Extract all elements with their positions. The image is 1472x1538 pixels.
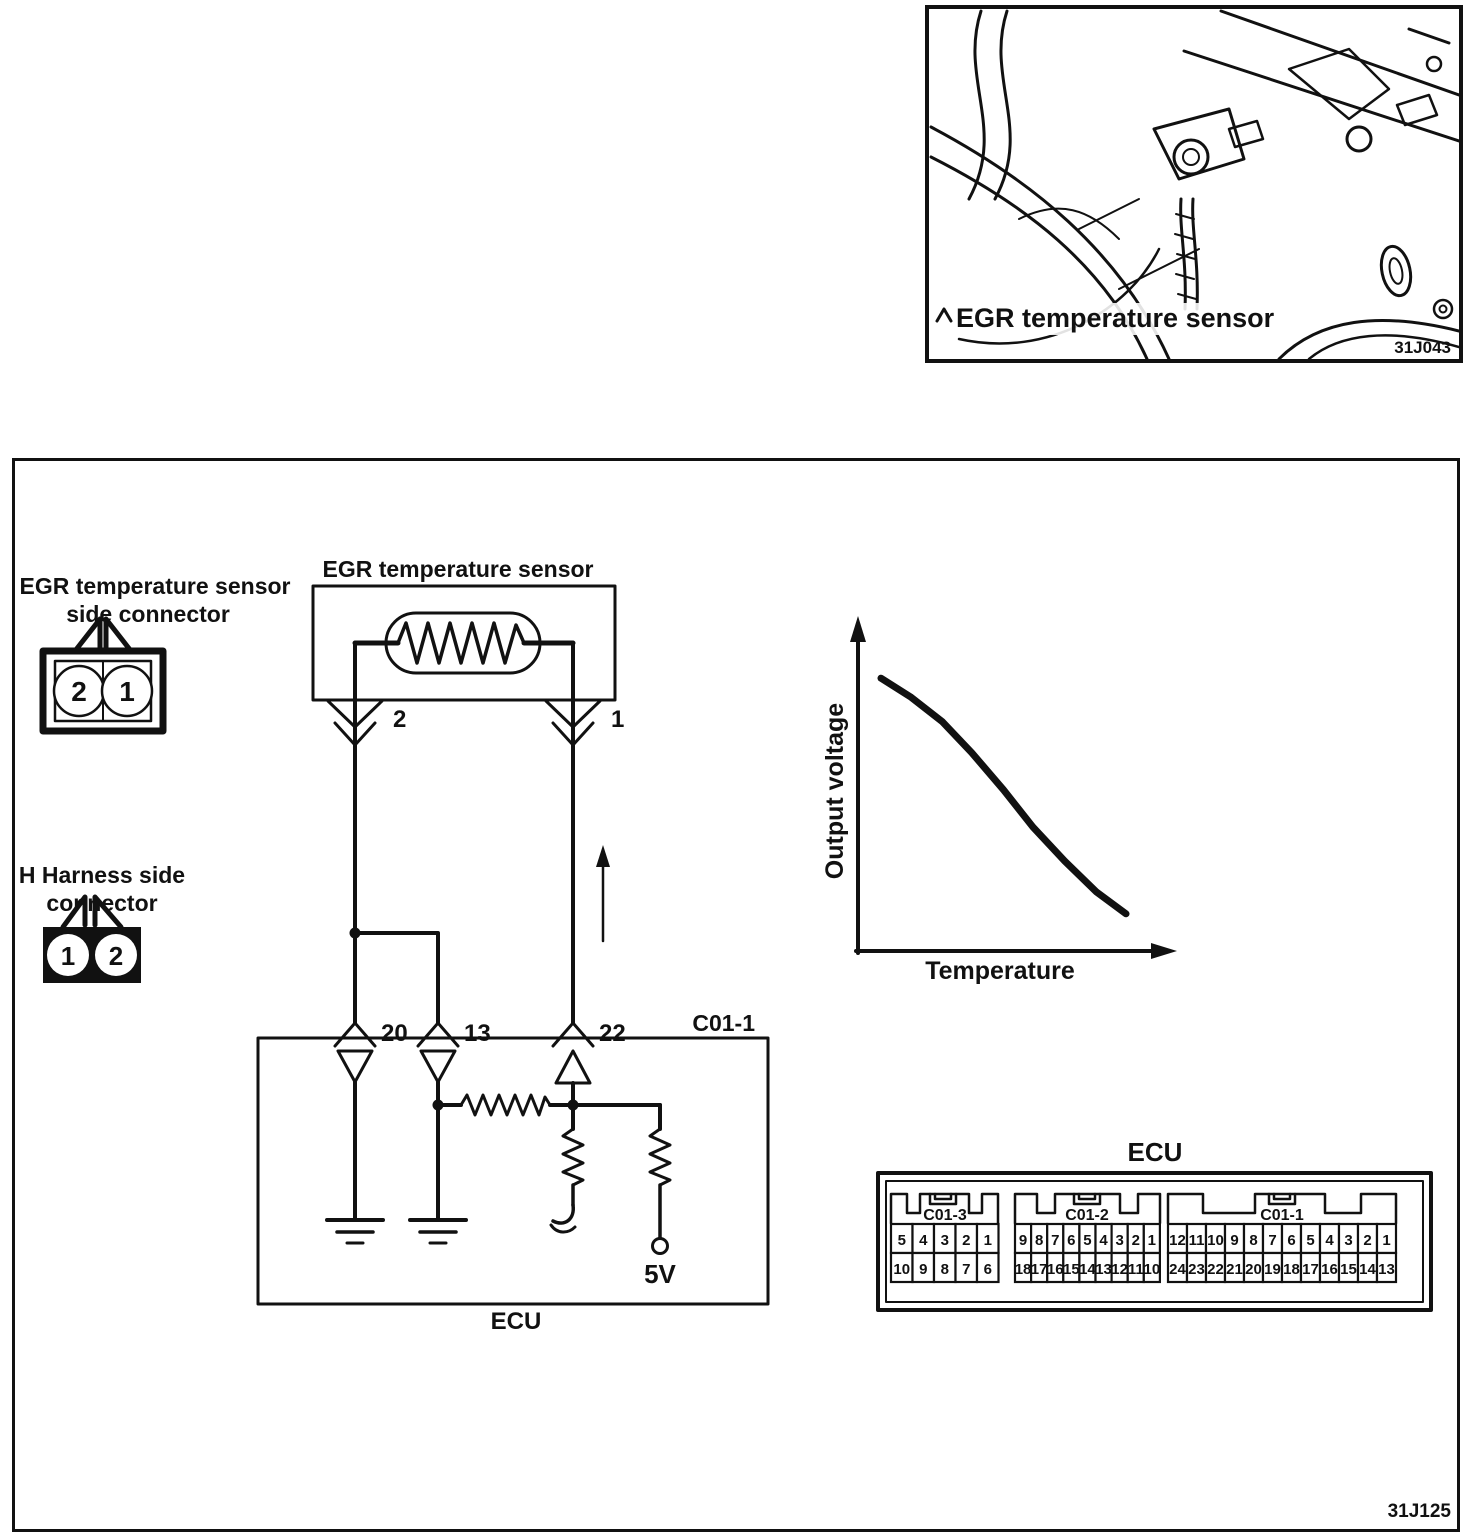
ecu-pin-number: 1	[1148, 1232, 1156, 1249]
engine-line-art: EGR temperature sensor 31J043	[929, 9, 1459, 359]
ecu-pin-number: 18	[1015, 1261, 1032, 1278]
pinout-section-label-c01-3: C01-3	[923, 1207, 967, 1224]
caption-caret	[937, 309, 951, 321]
photo-figure-code: 31J043	[1394, 338, 1451, 357]
harness-side-connector-label-line1: H Harness side	[19, 862, 185, 888]
ecu-box-label: ECU	[491, 1308, 542, 1335]
ecu-pin-number: 2	[962, 1232, 970, 1249]
ecu-pin-number: 24	[1169, 1261, 1186, 1278]
pinout-section-label-c01-2: C01-2	[1065, 1207, 1109, 1224]
ecu-pin-number: 7	[1268, 1232, 1276, 1249]
manual-page: { "photo_panel": { "caption": "EGR tempe…	[0, 0, 1472, 1538]
ecu-pin-number: 10	[893, 1261, 910, 1278]
ecu-pin-number: 7	[962, 1261, 970, 1278]
sensor-side-connector-label-line2: side connector	[66, 601, 230, 627]
ecu-pin-number: 4	[919, 1232, 928, 1249]
ecu-pin-number: 4	[1325, 1232, 1334, 1249]
ecu-pin-number: 11	[1189, 1232, 1205, 1249]
y-axis-label: Output voltage	[821, 703, 849, 879]
ecu-pin-number: 1	[984, 1232, 992, 1249]
voltage-temperature-curve	[881, 678, 1126, 914]
ecu-pin-number: 7	[1051, 1232, 1059, 1249]
engine-illustration-panel: EGR temperature sensor 31J043	[925, 5, 1463, 363]
ecu-pin-number: 11	[1128, 1261, 1144, 1278]
sensor-characteristic-graph: Output voltage Temperature	[821, 616, 1177, 985]
ecu-pin-number: 3	[941, 1232, 949, 1249]
ecu-pin-number: 20	[1245, 1261, 1262, 1278]
ecu-pin-number: 2	[1132, 1232, 1140, 1249]
ecu-pin-number: 6	[984, 1261, 992, 1278]
ecu-pin-number: 21	[1226, 1261, 1243, 1278]
ecu-pin-number: 12	[1111, 1261, 1128, 1278]
ecu-pin-number: 14	[1359, 1261, 1376, 1278]
ecu-pin-number: 9	[1230, 1232, 1238, 1249]
photo-caption: EGR temperature sensor	[956, 303, 1275, 333]
ecu-pin-number: 13	[1378, 1261, 1395, 1278]
sensor-side-connector-label-line1: EGR temperature sensor	[20, 573, 291, 599]
ecu-box: 20 13 22	[258, 1020, 768, 1304]
ecu-pin-number: 19	[1264, 1261, 1281, 1278]
sensor-resistor	[398, 623, 524, 663]
current-arrow	[596, 845, 610, 941]
wiring-diagram-panel: EGR temperature sensor side connector 2 …	[12, 458, 1460, 1532]
ecu-pin-number: 10	[1207, 1232, 1224, 1249]
ecu-pin-number: 4	[1099, 1232, 1108, 1249]
ecu-pin-number: 3	[1344, 1232, 1352, 1249]
ecu-pin-number: 13	[1095, 1261, 1112, 1278]
ecu-pin-number: 17	[1031, 1261, 1048, 1278]
ecu-pin-number: 14	[1079, 1261, 1096, 1278]
ecu-pin-13: 13	[464, 1020, 491, 1047]
sensor-connector-pin-1: 1	[119, 676, 135, 707]
x-axis-arrowhead	[1151, 943, 1177, 959]
wiring-diagram: EGR temperature sensor side connector 2 …	[15, 461, 1457, 1529]
pinout-grid-c01-3: 54321109876	[891, 1224, 999, 1282]
y-axis-arrowhead	[850, 616, 866, 642]
sensor-box	[313, 586, 615, 700]
ecu-pin-number: 6	[1067, 1232, 1075, 1249]
ecu-pin-number: 8	[1035, 1232, 1043, 1249]
ecu-pin-number: 12	[1169, 1232, 1186, 1249]
ecu-pin-number: 8	[941, 1261, 949, 1278]
ecu-pin-number: 5	[1083, 1232, 1091, 1249]
wiring-figure-code: 31J125	[1388, 1501, 1452, 1522]
ecu-pin-20: 20	[381, 1020, 408, 1047]
sensor-connector-pin-2: 2	[71, 676, 87, 707]
ecu-pin-number: 22	[1207, 1261, 1224, 1278]
harness-connector-pin-2: 2	[109, 941, 123, 971]
pullup-series-resistor	[461, 1095, 550, 1115]
ground-symbol-left	[327, 1220, 383, 1243]
ecu-pin-number: 9	[919, 1261, 927, 1278]
ecu-pin-number: 6	[1287, 1232, 1295, 1249]
ecu-pin-22: 22	[599, 1020, 626, 1047]
ecu-pin-number: 8	[1249, 1232, 1257, 1249]
pinout-section-label-c01-1: C01-1	[1260, 1207, 1304, 1224]
engine-sketch-sensor-area	[1154, 109, 1263, 309]
ecu-pin-number: 3	[1115, 1232, 1123, 1249]
pinout-grid-c01-1: 121110987654321242322212019181716151413	[1168, 1224, 1396, 1282]
sensor-side-connector-icon: 2 1	[43, 619, 163, 731]
ecu-pin-number: 1	[1382, 1232, 1390, 1249]
x-axis-label: Temperature	[925, 957, 1075, 985]
ecu-pin-number: 10	[1144, 1261, 1161, 1278]
engine-sketch-right-parts	[1279, 29, 1459, 359]
ecu-pinout: C01-3 C01-2 C01-1 54321109876 9876543211…	[878, 1173, 1431, 1310]
terminal-number-1: 1	[611, 706, 624, 733]
terminal-number-2: 2	[393, 706, 406, 733]
ecu-pin-number: 15	[1340, 1261, 1357, 1278]
ecu-pin-number: 17	[1302, 1261, 1319, 1278]
ecu-pin-number: 16	[1047, 1261, 1064, 1278]
ecu-pin-number: 9	[1019, 1232, 1027, 1249]
ecu-pin-number: 2	[1363, 1232, 1371, 1249]
ecu-pin-number: 15	[1063, 1261, 1080, 1278]
internal-resistor-5v: 5V	[644, 1105, 676, 1289]
ecu-pinout-title: ECU	[1128, 1137, 1183, 1167]
ecu-pin-number: 16	[1321, 1261, 1338, 1278]
sensor-box-title: EGR temperature sensor	[323, 556, 594, 582]
ecu-connector-code: C01-1	[692, 1010, 755, 1036]
pinout-grid-c01-2: 987654321181716151413121110	[1015, 1224, 1160, 1282]
ecu-pin-number: 5	[1306, 1232, 1314, 1249]
harness-connector-pin-1: 1	[61, 941, 75, 971]
supply-voltage-label: 5V	[644, 1259, 676, 1289]
ecu-pin-number: 5	[898, 1232, 906, 1249]
ecu-pin-number: 23	[1188, 1261, 1205, 1278]
internal-resistor-left	[551, 1129, 583, 1232]
ground-symbol-mid	[410, 1220, 466, 1243]
ecu-pin-number: 18	[1283, 1261, 1300, 1278]
